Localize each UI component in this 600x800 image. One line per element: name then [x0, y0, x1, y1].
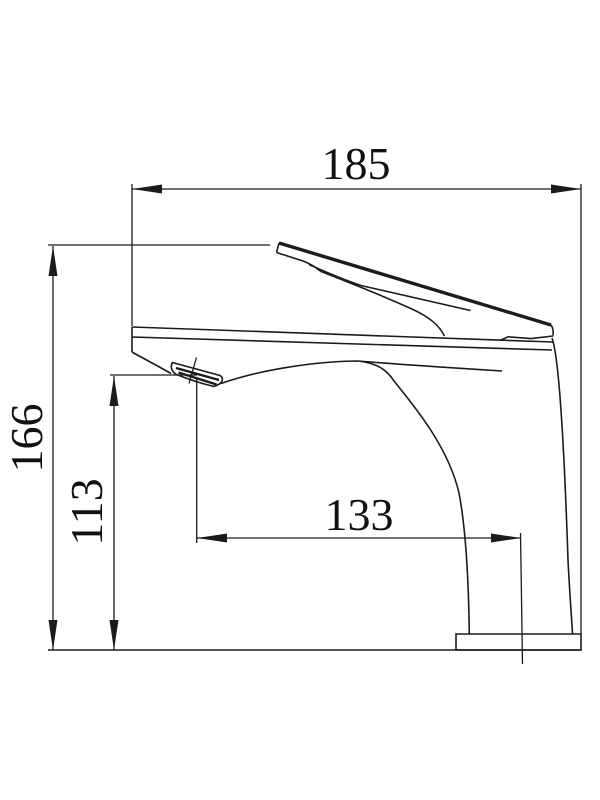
handle-accent-line [309, 265, 471, 311]
arrowhead-up [110, 376, 119, 406]
arrowhead-left [132, 185, 162, 194]
arrowhead-left [197, 534, 227, 543]
technical-drawing-page: 185 166 113 133 [0, 0, 600, 800]
faucet-handle [277, 243, 554, 341]
handle-tip-edge [551, 325, 553, 336]
dimension-overall-length: 185 [132, 138, 581, 634]
aerator-center-tick [189, 358, 197, 384]
dimension-overall-height: 166 [1, 245, 270, 650]
dimension-outlet-height: 113 [61, 375, 197, 650]
dim-value-spout-reach: 133 [325, 489, 394, 540]
handle-front-edge [277, 243, 280, 253]
spout-underside-front [132, 352, 171, 374]
arrowhead-down [110, 620, 119, 650]
arrowhead-right [551, 185, 581, 194]
ext-line-133-right [521, 533, 523, 664]
faucet-dimension-drawing: 185 166 113 133 [0, 0, 600, 800]
handle-top-edge [279, 243, 551, 325]
dim-value-outlet-height: 113 [61, 478, 112, 545]
dimension-spout-reach: 133 [197, 378, 523, 664]
base-plate [456, 634, 581, 650]
dim-value-overall-length: 185 [322, 138, 391, 189]
handle-underside-line [277, 253, 445, 337]
body-right-edge [552, 338, 573, 634]
arrowhead-down [49, 620, 58, 650]
dim-value-overall-height: 166 [1, 404, 52, 473]
arrowhead-right [491, 534, 521, 543]
arrowhead-up [49, 246, 58, 276]
body-underside-sweep [221, 361, 502, 384]
